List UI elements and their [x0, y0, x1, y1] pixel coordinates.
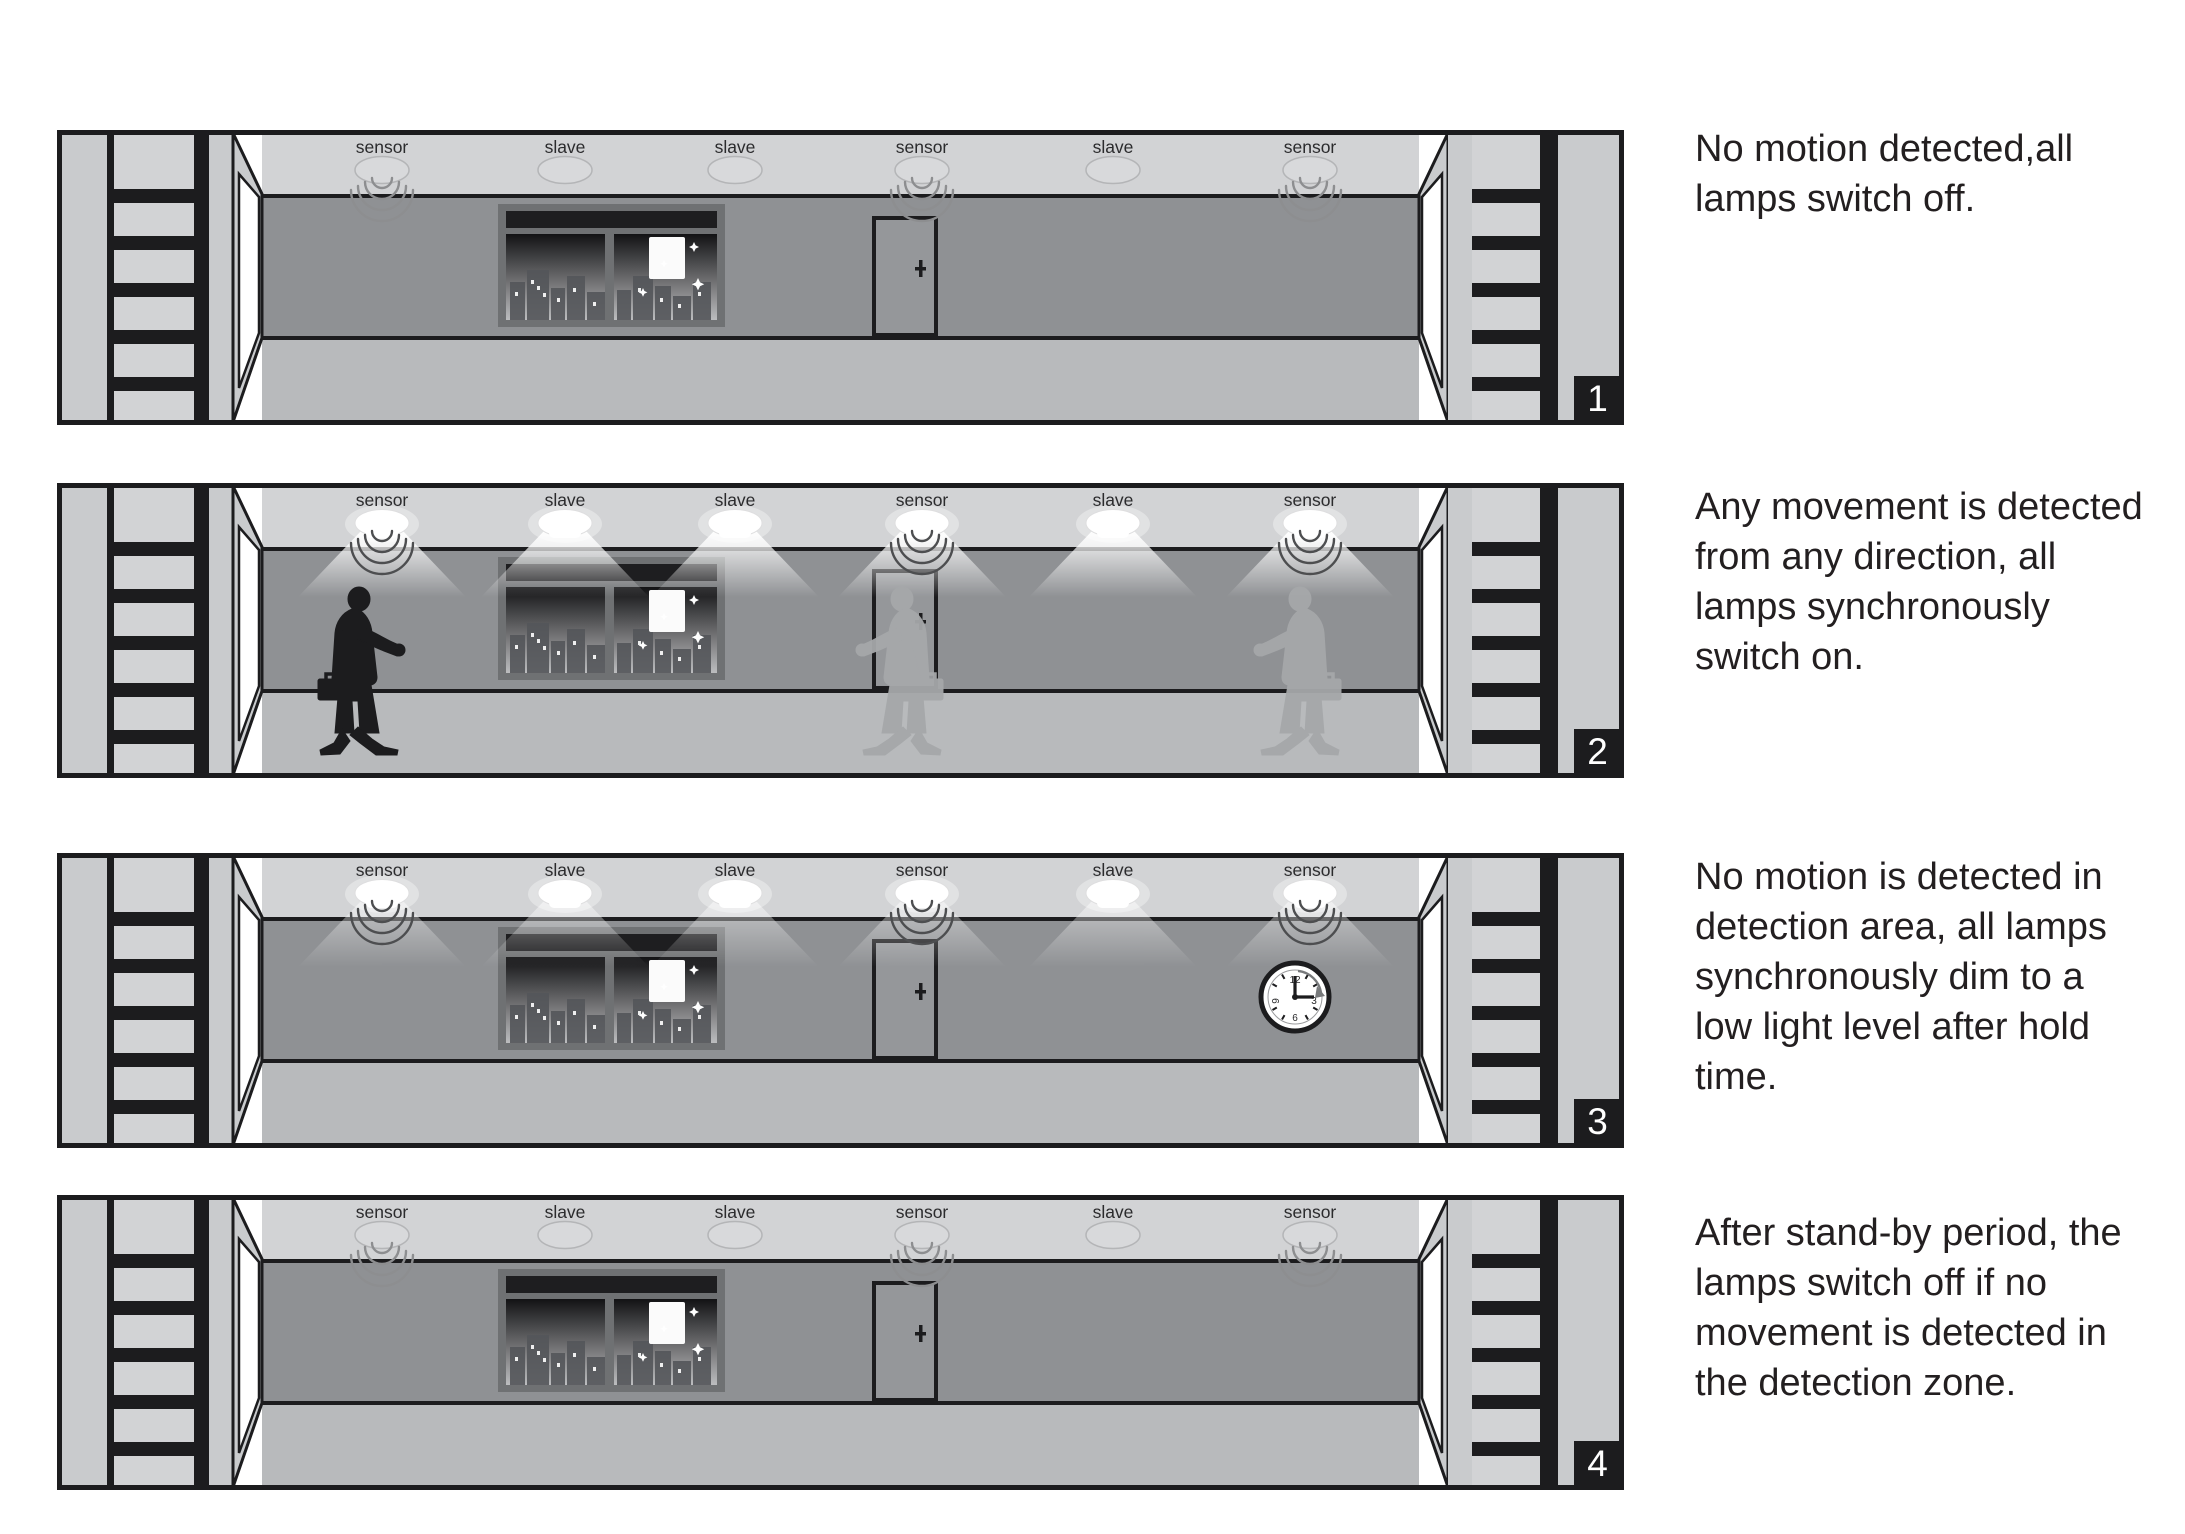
lamp-label-slave: slave: [715, 137, 756, 157]
left-strip: [209, 133, 233, 422]
lit-window-dot: [573, 288, 576, 292]
left-divider: [107, 856, 114, 1145]
ceiling-lamp-off: [1283, 157, 1337, 184]
lamp-dome: [549, 898, 581, 908]
lamp-label-slave: slave: [1093, 860, 1134, 880]
ladder-bar: [114, 1442, 194, 1456]
corridor-door: [874, 218, 936, 335]
right-black-bar: [1540, 486, 1558, 775]
lamp-dome: [366, 528, 398, 538]
lit-window-dot: [557, 1021, 560, 1025]
lit-window-dot: [543, 1016, 546, 1020]
ladder-bar: [114, 589, 194, 603]
lit-window-dot: [698, 1015, 701, 1019]
lit-window-dot: [660, 651, 663, 655]
lamp-label-slave: slave: [715, 860, 756, 880]
lamp-dome: [906, 528, 938, 538]
left-outer-column: [60, 1198, 107, 1487]
panel-number-badge: 1: [1574, 376, 1621, 422]
right-strip: [1448, 1198, 1472, 1487]
lamp-dome: [906, 898, 938, 908]
right-black-bar: [1540, 856, 1558, 1145]
left-strip: [209, 856, 233, 1145]
ladder-bar: [114, 1100, 194, 1114]
ladder-bar: [114, 330, 194, 344]
right-strip: [1448, 856, 1472, 1145]
ceiling-lamp-off: [355, 157, 409, 184]
hold-time-clock-icon: 12 3 6 9: [1261, 963, 1329, 1031]
corridor-ceiling: [262, 856, 1419, 917]
ceiling-edge-line: [262, 547, 1419, 551]
ladder-bar: [1472, 730, 1540, 744]
lit-window-dot: [515, 1357, 518, 1361]
lit-window-dot: [557, 651, 560, 655]
lit-window-dot: [557, 1363, 560, 1367]
lit-window-dot: [531, 633, 534, 637]
ladder-bar: [1472, 589, 1540, 603]
ladder-bar: [1472, 330, 1540, 344]
ladder-bar: [114, 636, 194, 650]
ceiling-edge-line: [262, 1259, 1419, 1263]
left-divider: [107, 486, 114, 775]
lit-window-dot: [573, 641, 576, 645]
ladder-bar: [114, 189, 194, 203]
sensor-lighting-diagram-page: sensorslaveslavesensorslavesensor 1: [0, 0, 2185, 1534]
left-divider: [107, 133, 114, 422]
ladder-bar: [1472, 1006, 1540, 1020]
lit-window-dot: [638, 288, 641, 292]
ceiling-edge-line: [262, 194, 1419, 198]
ladder-bar: [114, 1395, 194, 1409]
ceiling-lamp-off: [355, 1222, 409, 1249]
lit-window-dot: [531, 1345, 534, 1349]
lit-window-dot: [678, 657, 681, 661]
ladder-bar: [114, 542, 194, 556]
corridor-panel-4: sensorslaveslavesensorslavesensor 4: [57, 1195, 1624, 1490]
lamp-label-sensor: sensor: [896, 860, 949, 880]
lit-window-dot: [678, 304, 681, 308]
lit-window-dot: [531, 280, 534, 284]
ceiling-lamp-off: [1086, 157, 1140, 184]
lamp-label-slave: slave: [1093, 137, 1134, 157]
lamp-label-sensor: sensor: [1284, 1202, 1337, 1222]
ceiling-edge-line: [262, 917, 1419, 921]
lamp-label-sensor: sensor: [356, 1202, 409, 1222]
lit-window-dot: [638, 641, 641, 645]
left-outer-column: [60, 486, 107, 775]
ladder-bar: [1472, 1442, 1540, 1456]
lit-window-dot: [557, 298, 560, 302]
lamp-dome: [549, 528, 581, 538]
left-black-bar: [194, 1198, 209, 1487]
panel-number: 4: [1587, 1443, 1608, 1484]
lit-window-dot: [531, 1003, 534, 1007]
corridor-scene-2: sensorslaveslavesensorslavesensor 2: [57, 483, 1624, 778]
ladder-bar: [1472, 1395, 1540, 1409]
lamp-label-sensor: sensor: [356, 490, 409, 510]
left-black-bar: [194, 856, 209, 1145]
lit-window-dot: [593, 1367, 596, 1371]
left-outer-column: [60, 133, 107, 422]
window-transom: [506, 211, 717, 228]
ladder-bar: [114, 1348, 194, 1362]
lamp-dome: [1294, 528, 1326, 538]
ladder-bar: [1472, 959, 1540, 973]
lamp-dome: [719, 898, 751, 908]
right-strip: [1448, 133, 1472, 422]
lit-window-dot: [543, 646, 546, 650]
lit-window-dot: [638, 1011, 641, 1015]
lit-window-dot: [573, 1353, 576, 1357]
lamp-label-sensor: sensor: [356, 860, 409, 880]
lit-window-dot: [660, 298, 663, 302]
ladder-bar: [1472, 1053, 1540, 1067]
lamp-label-sensor: sensor: [896, 137, 949, 157]
ladder-bar: [1472, 236, 1540, 250]
ladder-bar: [114, 377, 194, 391]
lit-window-dot: [537, 639, 540, 643]
corridor-scene-4: sensorslaveslavesensorslavesensor 4: [57, 1195, 1624, 1490]
clock-number-9: 9: [1271, 998, 1282, 1004]
corridor-floor: [262, 340, 1419, 422]
ladder-bar: [114, 959, 194, 973]
corridor-floor: [262, 1063, 1419, 1145]
clock-center: [1292, 994, 1298, 1000]
lamp-dome: [1097, 898, 1129, 908]
right-black-bar: [1540, 133, 1558, 422]
moon-poster: [649, 1302, 685, 1344]
left-strip: [209, 486, 233, 775]
lamp-label-sensor: sensor: [896, 490, 949, 510]
ladder-bar: [1472, 377, 1540, 391]
ladder-bar: [1472, 1254, 1540, 1268]
lit-window-dot: [537, 1009, 540, 1013]
ladder-bar: [114, 683, 194, 697]
corridor-ceiling: [262, 1198, 1419, 1259]
lamp-label-sensor: sensor: [1284, 860, 1337, 880]
panel-number: 3: [1587, 1101, 1608, 1142]
ceiling-lamp-off: [708, 1222, 762, 1249]
lit-window-dot: [543, 1358, 546, 1362]
ladder-bar: [1472, 1301, 1540, 1315]
lit-window-dot: [537, 1351, 540, 1355]
lamp-label-slave: slave: [715, 490, 756, 510]
lit-window-dot: [678, 1027, 681, 1031]
ceiling-lamp-off: [1086, 1222, 1140, 1249]
left-outer-column: [60, 856, 107, 1145]
night-window: [498, 204, 725, 327]
caption-step-2: Any movement is detected from any direct…: [1695, 482, 2185, 682]
ceiling-lamp-off: [1283, 1222, 1337, 1249]
lit-window-dot: [638, 1353, 641, 1357]
ladder-bar: [1472, 636, 1540, 650]
right-black-bar: [1540, 1198, 1558, 1487]
night-window: [498, 1269, 725, 1392]
caption-step-3: No motion is detected in detection area,…: [1695, 852, 2185, 1102]
lamp-label-sensor: sensor: [896, 1202, 949, 1222]
ceiling-lamp-off: [708, 157, 762, 184]
ladder-bar: [114, 1053, 194, 1067]
left-divider: [107, 1198, 114, 1487]
ladder-bar: [1472, 189, 1540, 203]
ladder-bar: [114, 1006, 194, 1020]
lamp-label-sensor: sensor: [1284, 137, 1337, 157]
left-black-bar: [194, 133, 209, 422]
lamp-dome: [366, 898, 398, 908]
panel-number-badge: 3: [1574, 1099, 1621, 1145]
lit-window-dot: [543, 293, 546, 297]
corridor-back-wall: [262, 198, 1419, 336]
corridor-ceiling: [262, 486, 1419, 547]
left-black-bar: [194, 486, 209, 775]
lamp-dome: [1097, 528, 1129, 538]
corridor-panel-2: sensorslaveslavesensorslavesensor 2: [57, 483, 1624, 778]
lamp-label-slave: slave: [1093, 1202, 1134, 1222]
lit-window-dot: [515, 1015, 518, 1019]
lamp-label-slave: slave: [715, 1202, 756, 1222]
panel-number-badge: 2: [1574, 729, 1621, 775]
moon-poster: [649, 237, 685, 279]
floor-edge-line: [262, 689, 1419, 693]
ladder-bar: [1472, 683, 1540, 697]
ladder-bar: [114, 1254, 194, 1268]
lit-window-dot: [593, 1025, 596, 1029]
ladder-bar: [1472, 1348, 1540, 1362]
corridor-ceiling: [262, 133, 1419, 194]
lit-window-dot: [678, 1369, 681, 1373]
window-transom: [506, 1276, 717, 1293]
ladder-bar: [114, 730, 194, 744]
corridor-scene-1: sensorslaveslavesensorslavesensor 1: [57, 130, 1624, 425]
clock-number-6: 6: [1292, 1013, 1298, 1024]
ladder-bar: [1472, 542, 1540, 556]
lit-window-dot: [593, 302, 596, 306]
ladder-bar: [1472, 1100, 1540, 1114]
panel-number: 2: [1587, 731, 1608, 772]
right-strip: [1448, 486, 1472, 775]
ladder-bar: [114, 912, 194, 926]
ladder-bar: [114, 236, 194, 250]
corridor-back-wall: [262, 1263, 1419, 1401]
lit-window-dot: [660, 1021, 663, 1025]
left-strip: [209, 1198, 233, 1487]
corridor-scene-3: sensorslaveslavesensorslavesensor 12 3 6…: [57, 853, 1624, 1148]
lamp-label-slave: slave: [545, 860, 586, 880]
lit-window-dot: [698, 645, 701, 649]
caption-step-4: After stand-by period, the lamps switch …: [1695, 1208, 2185, 1408]
lamp-dome: [719, 528, 751, 538]
lit-window-dot: [515, 645, 518, 649]
lit-window-dot: [660, 1363, 663, 1367]
lit-window-dot: [537, 286, 540, 290]
lamp-label-sensor: sensor: [356, 137, 409, 157]
ladder-bar: [1472, 912, 1540, 926]
ladder-bar: [1472, 283, 1540, 297]
floor-edge-line: [262, 1059, 1419, 1063]
ceiling-lamp-off: [538, 157, 592, 184]
lit-window-dot: [698, 1357, 701, 1361]
corridor-panel-3: sensorslaveslavesensorslavesensor 12 3 6…: [57, 853, 1624, 1148]
lamp-dome: [1294, 898, 1326, 908]
panel-number-badge: 4: [1574, 1441, 1621, 1487]
lamp-label-slave: slave: [545, 490, 586, 510]
floor-edge-line: [262, 336, 1419, 340]
floor-edge-line: [262, 1401, 1419, 1405]
caption-step-1: No motion detected,all lamps switch off.: [1695, 124, 2185, 224]
corridor-floor: [262, 693, 1419, 775]
lamp-label-sensor: sensor: [1284, 490, 1337, 510]
lit-window-dot: [515, 292, 518, 296]
corridor-door: [874, 1283, 936, 1400]
lamp-label-slave: slave: [545, 1202, 586, 1222]
lamp-label-slave: slave: [545, 137, 586, 157]
ceiling-lamp-off: [538, 1222, 592, 1249]
lit-window-dot: [573, 1011, 576, 1015]
lit-window-dot: [698, 292, 701, 296]
ceiling-lamp-off: [895, 157, 949, 184]
corridor-floor: [262, 1405, 1419, 1487]
corridor-panel-1: sensorslaveslavesensorslavesensor 1: [57, 130, 1624, 425]
lamp-label-slave: slave: [1093, 490, 1134, 510]
ladder-bar: [114, 283, 194, 297]
panel-number: 1: [1587, 378, 1608, 419]
lit-window-dot: [593, 655, 596, 659]
ceiling-lamp-off: [895, 1222, 949, 1249]
ladder-bar: [114, 1301, 194, 1315]
